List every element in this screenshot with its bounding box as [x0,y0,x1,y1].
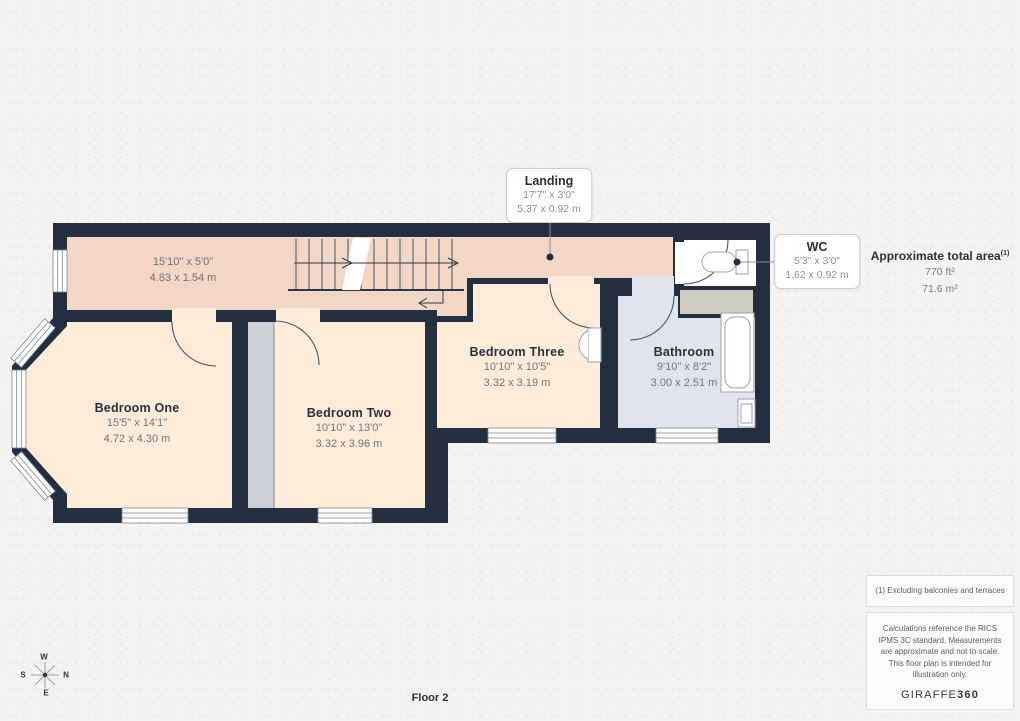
total-area-title: Approximate total area(1) [871,246,1010,264]
room-name: Bedroom One [95,400,180,416]
disclaimer-text: Calculations reference the RICS IPMS 3C … [875,623,1005,681]
room-dims-metric: 3.00 x 2.51 m [651,376,718,392]
window-landing-left [53,250,67,292]
bathtub-icon [721,313,754,392]
room-dims-metric: 3.32 x 3.96 m [307,437,392,453]
footnote-box: (1) Excluding balconies and terraces [866,575,1014,607]
room-label-bedroom-two: Bedroom Two 10'10" x 13'0" 3.32 x 3.96 m [307,405,392,452]
room-dims-metric: 4.72 x 4.30 m [95,432,180,448]
callout-title: WC [785,239,849,255]
room-dims-imperial: 9'10" x 8'2" [651,360,718,376]
floorplan-canvas: 15'10" x 5'0" 4.83 x 1.54 m Bedroom One … [0,0,1020,721]
room-dims-imperial: 15'5" x 14'1" [95,416,180,432]
disclaimer-box: Calculations reference the RICS IPMS 3C … [866,612,1014,710]
brand-bold: 360 [957,689,979,701]
room-label-bedroom-one: Bedroom One 15'5" x 14'1" 4.72 x 4.30 m [95,400,180,447]
room-dims-imperial: 10'10" x 13'0" [307,421,392,437]
callout-dims-metric: 1.62 x 0.92 m [785,269,849,283]
callout-dims-metric: 5.37 x 0.92 m [517,203,581,217]
callout-dims-imperial: 17'7" x 3'0" [517,189,581,203]
giraffe360-logo: GIRAFFE360 [875,690,1005,702]
window-bedroom-one [122,508,188,523]
compass-label-w: W [40,653,48,662]
footnote-text: (1) Excluding balconies and terraces [875,586,1004,595]
window-bedroom-three [488,428,556,443]
total-area-footnote-marker: (1) [1001,250,1010,257]
total-area-m: 71.6 m² [871,281,1010,298]
room-label-bedroom-three: Bedroom Three 10'10" x 10'5" 3.32 x 3.19… [470,344,565,391]
room-label-bathroom: Bathroom 9'10" x 8'2" 3.00 x 2.51 m [651,344,718,391]
landing-strip-dims: 15'10" x 5'0" 4.83 x 1.54 m [150,255,217,286]
window-bedroom-two [318,508,372,523]
sink-icon [738,399,755,427]
compass-label-n: N [63,671,69,680]
window-bay-middle [12,370,26,448]
compass-label-s: S [20,671,25,680]
brand-regular: GIRAFFE [901,689,957,701]
total-area-title-text: Approximate total area [871,249,1001,263]
cupboard [680,290,753,314]
compass-rose-icon [31,662,59,688]
callout-title: Landing [517,173,581,189]
floor-title: Floor 2 [412,692,449,704]
room-dims-metric: 3.32 x 3.19 m [470,376,565,392]
room-name: Bathroom [651,344,718,360]
callout-dims-imperial: 5'3" x 3'0" [785,255,849,269]
compass-label-e: E [43,689,48,698]
room-name: Bedroom Two [307,405,392,421]
callout-landing: Landing 17'7" x 3'0" 5.37 x 0.92 m [506,168,592,223]
total-area-ft: 770 ft² [871,264,1010,281]
window-bathroom [656,428,718,443]
total-area-block: Approximate total area(1) 770 ft² 71.6 m… [871,246,1010,298]
room-name: Bedroom Three [470,344,565,360]
room-dims-imperial: 10'10" x 10'5" [470,360,565,376]
wardrobe [248,322,274,508]
landing-strip-dims-imperial: 15'10" x 5'0" [150,255,217,271]
callout-wc: WC 5'3" x 3'0" 1.62 x 0.92 m [774,234,860,289]
landing-strip-dims-metric: 4.83 x 1.54 m [150,271,217,287]
